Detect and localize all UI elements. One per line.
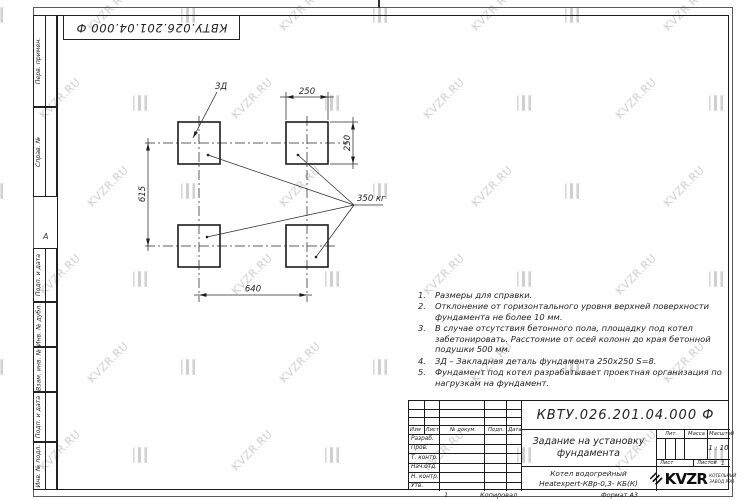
centerlines [145,116,348,302]
watermark-logo-icon [0,175,13,206]
tb-scale-value: 1 : 10 [707,444,730,452]
tb-row-prov: Пров. [411,445,428,451]
load-label: 350 кг [357,194,386,204]
note-number: 5. [418,367,435,388]
tb-col-podp: Подп. [488,427,504,433]
tb-mass-label: Масса [688,431,705,437]
watermark-logo-icon [0,351,13,382]
drawing-sheet: KVZR.RUKVZR.RUKVZR.RUKVZR.RUKVZR.RUKVZR.… [0,0,750,500]
dimension-label-bottom: 640 [245,285,261,295]
tb-col-list: Лист [426,427,439,433]
margin-label-vzam-inv: Взам. инв. № [33,347,45,392]
tb-title-line2: фундамента [557,448,620,459]
tb-product: Котел водогрейный Heatexpert-КВр-0,3- КБ… [521,466,656,491]
tb-line [409,409,521,410]
tb-col-doc: № докум. [450,427,476,433]
fold-tick [378,0,380,8]
dimension-label-top: 250 [299,87,315,97]
margin-label-podp-data-1: Подп. и дата [33,248,45,302]
note-text: ЗД – Закладная деталь фундамента 250х250… [435,356,656,366]
watermark-logo-icon [0,0,13,31]
dimension-label-right: 250 [343,135,353,151]
notes-list: 1.Размеры для справки. 2.Отклонение от г… [418,290,726,389]
note-item: 2.Отклонение от горизонтального уровня в… [418,301,726,322]
note-text: В случае отсутствия бетонного пола, площ… [435,323,711,354]
margin-cell-divider [45,108,46,196]
margin-label-sprav-no: Справ. № [33,107,45,197]
tb-line [484,401,485,491]
note-number: 4. [418,356,435,366]
foundation-pads [178,122,328,267]
note-number: 2. [418,301,435,322]
dimension-label-left: 615 [138,186,148,202]
tb-product-line1: Котел водогрейный [550,469,627,479]
tb-row-tkontr: Т. контр. [411,455,438,461]
margin-cell-divider [45,249,46,301]
embedded-detail-label: ЗД [215,82,227,92]
tb-scale-label: Масштаб [709,431,734,437]
tb-col-izm: Изм [410,427,421,433]
note-text: Размеры для справки. [435,290,532,300]
kvzr-logo-subtitle-line1: КОТЕЛЬНЫЙ [709,473,736,478]
margin-label-perv-primen: Перв. примен. [33,15,45,107]
tb-col-data: Дата [508,427,522,433]
note-item: 3.В случае отсутствия бетонного пола, пл… [418,323,726,354]
note-number: 1. [418,290,435,300]
kvzr-logo-text: KVZR [665,470,707,488]
title-block: Изм Лист № докум. Подп. Дата Разраб. Про… [408,400,729,490]
tb-line [656,438,730,439]
tb-line [675,438,676,459]
margin-cell-divider [45,16,46,106]
kvzr-logo-subtitle: КОТЕЛЬНЫЙ ЗАВОД РЭП [709,473,736,484]
tb-line [409,417,521,418]
copied-label: Копировал [480,491,517,499]
tb-product-line2: Heatexpert-КВр-0,3- КБ(К) [539,479,638,489]
margin-cell-divider [45,443,46,489]
tb-designation: КВТУ.026.201.04.000 Ф [521,401,730,429]
copy-number: 1 [444,491,448,499]
note-item: 4.ЗД – Закладная деталь фундамента 250х2… [418,356,726,366]
margin-cell-divider [45,393,46,441]
tb-row-nachotd: Нач.отд. [411,464,437,470]
margin-label-podp-data-2: Подп. и дата [33,392,45,442]
tb-line [439,401,440,491]
note-item: 1.Размеры для справки. [418,290,726,300]
format-label: Формат А3 [601,491,638,499]
rotated-designation-stamp: КВТУ.026.201.04.000 Ф [63,15,240,40]
dimension-labels: 250 250 615 640 ЗД 350 кг [138,82,386,295]
foundation-plan-drawing: 250 250 615 640 ЗД 350 кг [120,70,420,310]
tb-logo-cell: KVZR КОТЕЛЬНЫЙ ЗАВОД РЭП [656,466,730,491]
tb-row-razrab: Разраб. [411,436,434,442]
margin-label-inv-podl: Инв. № подл. [33,442,45,490]
rotated-designation-text: КВТУ.026.201.04.000 Ф [76,21,227,35]
tb-row-utv: Утв. [411,483,423,489]
tb-line [506,401,507,491]
note-number: 3. [418,323,435,354]
note-text: Фундамент под котел разрабатывает проект… [435,367,722,388]
tb-title-line1: Задание на установку [533,436,645,447]
kvzr-logo-subtitle-line2: ЗАВОД РЭП [709,479,736,484]
tb-lit-label: Лит. [665,431,677,437]
tb-document-title: Задание на установку фундамента [521,429,656,466]
tb-row-nkontr: Н. контр. [411,474,439,480]
note-item: 5.Фундамент под котел разрабатывает прое… [418,367,726,388]
note-text: Отклонение от горизонтального уровня вер… [435,301,709,322]
tb-line [665,438,666,459]
tb-line [684,429,685,459]
margin-label-inv-dubl: Инв. № дубл. [33,302,45,347]
fold-letter: А [43,232,48,241]
tb-line [409,482,521,483]
